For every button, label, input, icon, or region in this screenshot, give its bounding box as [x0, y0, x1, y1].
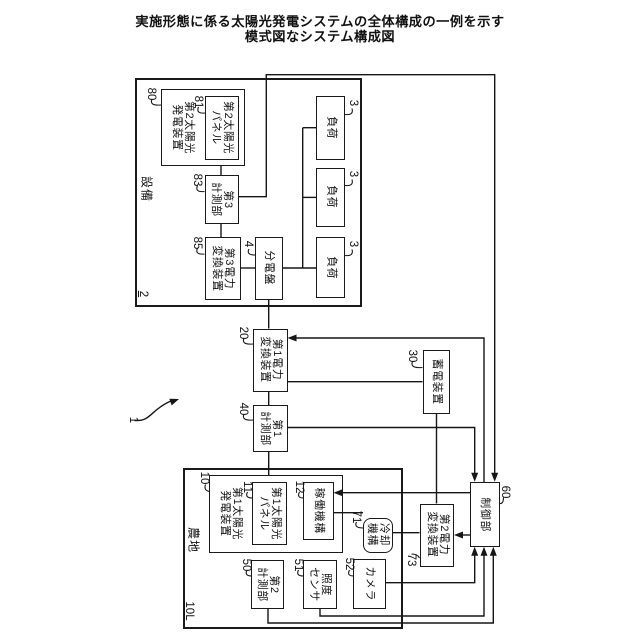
ref-10: 10	[198, 472, 210, 485]
load1-box: 負荷	[316, 96, 345, 160]
farmland-label: 農地	[186, 527, 203, 553]
system-pointer-curve	[135, 401, 172, 421]
pv1-panel-label: 第1太陽光 パネル	[258, 487, 281, 540]
load2-label: 負荷	[325, 185, 337, 208]
conv1-box: 第1電力 変換装置	[253, 329, 288, 392]
ref-81: 81	[192, 96, 204, 109]
conv3-box: 第3電力 変換装置	[205, 237, 241, 300]
ref-83: 83	[191, 174, 203, 187]
ref-50: 50	[240, 558, 252, 571]
ref-20: 20	[237, 326, 249, 339]
wire-controller-conv1	[296, 338, 484, 482]
ref-2: 2	[137, 291, 149, 297]
cooling-mechanism-box: 冷却 機構	[363, 518, 393, 553]
ref-4: 4	[242, 240, 254, 246]
conv3-label: 第3電力 変換装置	[211, 245, 234, 291]
ref-71: 71	[350, 510, 362, 523]
illuminance-sensor-label: 照度 センサ	[308, 567, 331, 602]
ref-80: 80	[145, 87, 157, 100]
load1-label: 負荷	[325, 116, 337, 139]
pv2-panel-box: 第2太陽光 パネル	[205, 96, 239, 160]
meter1-label: 第1 計測部	[258, 411, 281, 446]
drive-mechanism-label: 稼働機構	[312, 488, 324, 534]
equipment-label: 設備	[139, 176, 156, 202]
load2-box: 負荷	[316, 168, 345, 227]
patent-diagram-page: 実施形態に係る太陽光発電システムの全体構成の一例を示す 模式図なシステム構成図 …	[0, 0, 640, 640]
ref-1: 1	[127, 417, 139, 423]
conv2-label: 第2電力 変換装置	[425, 512, 448, 558]
leader-60	[499, 498, 504, 504]
arrow-into-conv1	[288, 335, 297, 342]
arrow-into-controller-bottom-2	[481, 547, 488, 556]
ref-52: 52	[343, 558, 355, 571]
arrow-into-controller-bottom-1	[471, 547, 478, 556]
figure-title-line2: 模式図なシステム構成図	[0, 26, 640, 45]
ref-3a: 3	[347, 100, 359, 106]
pv2-generator-label: 第2太陽光 発電装置	[171, 101, 194, 154]
illuminance-sensor-box: 照度 センサ	[303, 560, 337, 609]
arrow-into-controller-bottom-3	[490, 547, 497, 556]
meter2-box: 第2 計測部	[251, 560, 284, 609]
ref-73: 73	[405, 553, 417, 566]
battery-box: 蓄電装置	[423, 350, 451, 414]
camera-label: カメラ	[363, 566, 375, 601]
distribution-board-box: 分電盤	[255, 237, 283, 300]
battery-label: 蓄電装置	[430, 359, 442, 405]
conv2-box: 第2電力 変換装置	[420, 504, 455, 567]
controller-label: 制御部	[479, 497, 491, 532]
meter1-box: 第1 計測部	[253, 405, 288, 452]
meter3-label: 第3 計測部	[210, 182, 233, 217]
ref-3b: 3	[347, 171, 359, 177]
meter3-box: 第3 計測部	[205, 175, 239, 224]
ref-10L: 10L	[183, 601, 195, 620]
load3-label: 負荷	[325, 256, 337, 279]
cooling-mechanism-label: 冷却 機構	[366, 523, 389, 546]
drive-mechanism-box: 稼働機構	[303, 482, 334, 540]
ref-12: 12	[293, 480, 305, 493]
ref-60: 60	[499, 486, 511, 499]
load3-box: 負荷	[316, 237, 345, 298]
wire-meter1-controller	[288, 428, 475, 474]
arrow-into-controller-top-right	[491, 473, 498, 482]
pv2-panel-label: 第2太陽光 パネル	[210, 101, 233, 154]
leader-30	[412, 362, 423, 368]
ref-51: 51	[292, 558, 304, 571]
camera-box: カメラ	[353, 559, 387, 609]
distribution-board-label: 分電盤	[263, 251, 275, 286]
ref-30: 30	[406, 350, 418, 363]
ref-11: 11	[241, 481, 253, 493]
conv1-label: 第1電力 変換装置	[258, 337, 281, 383]
ref-40: 40	[237, 402, 249, 415]
pv1-generator-label: 第1太陽光 発電装置	[219, 487, 242, 540]
arrow-into-conv2	[454, 532, 463, 539]
arrow-into-controller-top-left	[471, 473, 478, 482]
pv1-panel-box: 第1太陽光 パネル	[252, 482, 287, 545]
system-pointer-arrowhead	[169, 399, 179, 406]
controller-box: 制御部	[470, 482, 500, 547]
ref-85: 85	[191, 236, 203, 249]
meter2-label: 第2 計測部	[256, 567, 279, 602]
ref-3c: 3	[347, 241, 359, 247]
